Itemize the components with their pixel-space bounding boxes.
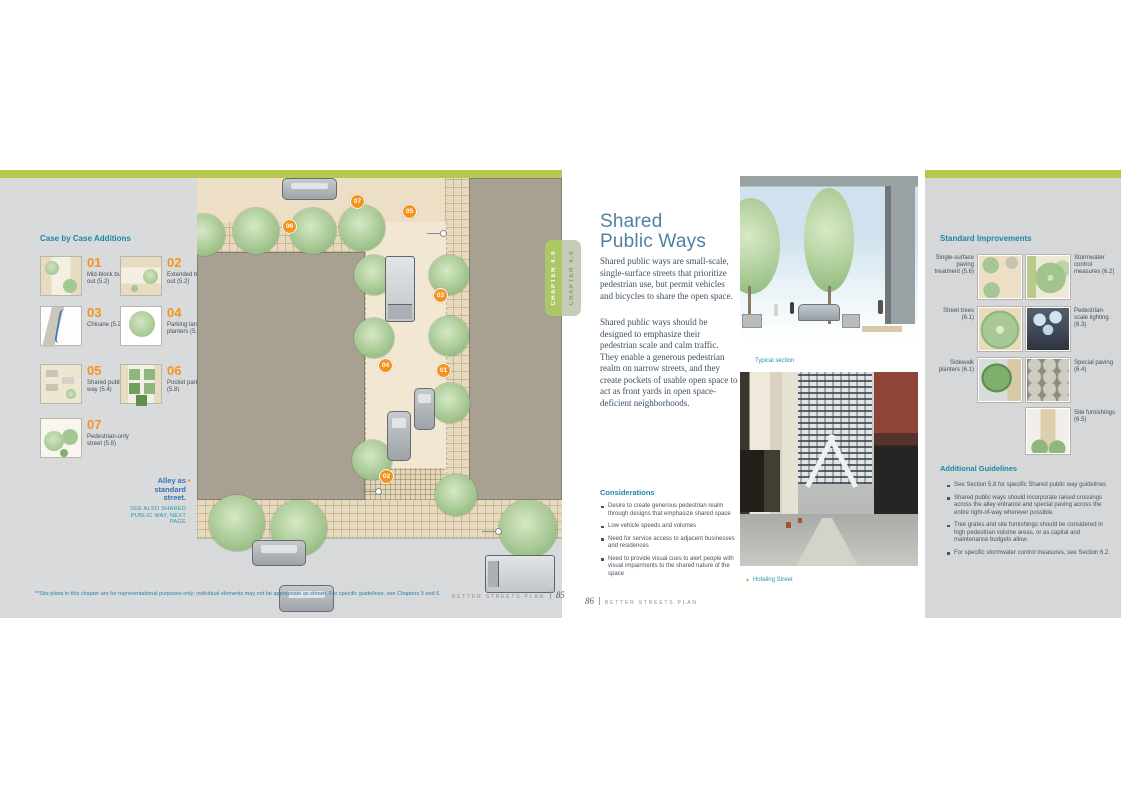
case-number: 04	[167, 306, 181, 319]
plan-callout: 01	[436, 363, 451, 378]
guideline-bullet: Shared public ways should incorporate ra…	[946, 495, 1114, 518]
tree-illustration	[804, 188, 854, 292]
improvement-thumbnail	[1026, 307, 1070, 351]
page-title-line1: Shared	[600, 212, 706, 232]
street-lamp	[440, 230, 447, 237]
plan-callout: 05	[402, 204, 417, 219]
photo-caption: ▲Hotaling Street	[745, 568, 793, 586]
building-illustration	[885, 186, 915, 324]
left-page-footer: BETTER STREETS PLAN85	[452, 590, 565, 600]
case-thumbnail	[120, 364, 162, 404]
tree	[354, 318, 394, 358]
case-thumbnail	[40, 364, 82, 404]
planter-pot	[798, 518, 802, 523]
page-title: Shared Public Ways	[600, 212, 706, 252]
guideline-bullet: See Section 5.8 for specific Shared publ…	[946, 482, 1114, 490]
right-page-footer: 86BETTER STREETS PLAN	[585, 591, 698, 609]
crosswalk-strip	[862, 326, 902, 332]
planter-pot	[786, 522, 791, 528]
chapter-tab-label: CHAPTER 4.0	[569, 250, 575, 306]
tree	[430, 383, 470, 423]
car	[279, 585, 334, 612]
left-page-accent-bar	[0, 170, 562, 178]
plan-callout: 07	[350, 194, 365, 209]
car	[387, 411, 411, 461]
triangle-icon: ▲	[745, 577, 750, 583]
footer-divider	[550, 591, 551, 599]
improvement-label: Single-surface paving treatment (5.6)	[932, 255, 974, 276]
footnote: **Site plans in this chapter are for rep…	[35, 591, 441, 597]
section-caption: Typical section	[755, 358, 794, 364]
car-windshield	[291, 183, 328, 189]
improvement-label: Special paving (6.4)	[1074, 360, 1118, 374]
case-number: 05	[87, 364, 101, 377]
footer-divider	[599, 597, 600, 605]
page-title-line2: Public Ways	[600, 232, 706, 252]
planter-box	[742, 314, 762, 328]
improvement-thumbnail	[1026, 358, 1070, 402]
plan-callout: 06	[282, 219, 297, 234]
truck	[485, 555, 555, 593]
case-number: 06	[167, 364, 181, 377]
considerations-list: Desire to create generous pedestrian rea…	[600, 503, 742, 583]
plan-callout: 03	[433, 288, 448, 303]
alley-see-also-note: SEE ALSO SHARED PUBLIC WAY, NEXT PAGE	[126, 506, 186, 526]
alley-standard-street-note: Alley as standard street.	[130, 477, 186, 503]
case-additions-heading: Case by Case Additions	[40, 234, 131, 243]
case-number: 02	[167, 256, 181, 269]
guideline-bullet: Tree grates and site furnishings should …	[946, 522, 1114, 545]
improvement-label: Street trees (6.1)	[932, 308, 974, 322]
improvement-label: Stormwater control measures (6.2)	[1074, 255, 1118, 276]
arrow-icon: ▸	[188, 477, 191, 484]
tree	[290, 208, 336, 254]
chapter-tab: CHAPTER 4.0 CHAPTER 4.0	[545, 240, 581, 316]
case-thumbnail	[120, 256, 162, 296]
page-number: 85	[556, 590, 565, 600]
typical-section-illustration	[740, 176, 918, 354]
tree-illustration	[740, 198, 780, 294]
truck-cab	[388, 304, 412, 319]
office-tower	[792, 372, 872, 484]
case-thumbnail	[40, 418, 82, 458]
delivery-truck	[385, 256, 415, 322]
guideline-bullet: For specific stormwater control measures…	[946, 550, 1114, 558]
improvement-label: Pedestrian-scale lighting (6.3)	[1074, 308, 1118, 329]
pedestrian-figure	[774, 304, 778, 316]
planter-box	[842, 314, 860, 328]
tree	[233, 208, 279, 254]
right-panel-accent-bar	[925, 170, 1121, 178]
case-label: Pedestrian-only street (5.8)	[87, 434, 139, 448]
brace-right	[827, 434, 858, 488]
photo-caption-text: Hotaling Street	[753, 577, 793, 583]
chapter-tab-back: CHAPTER 4.0	[562, 240, 581, 316]
footer-book-title: BETTER STREETS PLAN	[452, 594, 545, 600]
improvement-thumbnail	[1026, 408, 1070, 454]
site-plan-illustration: 07 05 06 03 04 01 02	[197, 178, 562, 618]
intro-paragraph: Shared public ways should be designed to…	[600, 317, 738, 409]
consideration-bullet: Need to provide visual cues to alert peo…	[600, 556, 742, 579]
improvement-thumbnail	[1026, 255, 1070, 299]
tree	[499, 500, 557, 558]
car	[252, 540, 306, 566]
truck-cab	[488, 561, 499, 586]
car-illustration	[798, 304, 840, 321]
building-block-right	[469, 178, 562, 500]
guidelines-list: See Section 5.8 for specific Shared publ…	[946, 482, 1114, 562]
improvement-thumbnail	[978, 307, 1022, 351]
tree	[339, 205, 385, 251]
plan-callout: 04	[378, 358, 393, 373]
improvement-thumbnail	[978, 255, 1022, 299]
improvement-thumbnail	[978, 358, 1022, 402]
pedestrian-figure	[878, 300, 883, 314]
car	[282, 178, 337, 200]
page-number: 86	[585, 596, 594, 606]
footer-book-title: BETTER STREETS PLAN	[605, 600, 698, 606]
improvement-label: Sidewalk planters (6.1)	[932, 360, 974, 374]
document-spread: Case by Case Additions 01 Mid-block bulb…	[0, 0, 1123, 794]
consideration-bullet: Low vehicle speeds and volumes	[600, 523, 742, 531]
case-item-03: 03 Chicane (5.2)	[40, 306, 132, 352]
case-item-05: 05 Shared public way (5.4)	[40, 364, 132, 410]
case-thumbnail	[40, 306, 82, 346]
consideration-bullet: Desire to create generous pedestrian rea…	[600, 503, 742, 518]
street-lamp	[375, 488, 382, 495]
case-thumbnail	[120, 306, 162, 346]
tree	[435, 474, 477, 516]
pedestrian-figure	[790, 302, 794, 314]
case-number: 03	[87, 306, 101, 319]
guidelines-heading: Additional Guidelines	[940, 464, 1017, 473]
chapter-tab-label: CHAPTER 4.0	[551, 250, 557, 306]
left-buildings	[740, 372, 798, 530]
chapter-tab-front: CHAPTER 4.0	[545, 240, 562, 316]
right-brick-building	[874, 372, 918, 532]
building-block-left	[197, 252, 365, 500]
car-windshield	[392, 418, 406, 429]
street-photo	[740, 372, 918, 566]
improvement-label: Site furnishings (6.5)	[1074, 410, 1118, 424]
car	[414, 388, 435, 430]
street-lamp	[495, 528, 502, 535]
intro-paragraph: Shared public ways are small-scale, sing…	[600, 256, 738, 302]
case-item-07: 07 Pedestrian-only street (5.8)	[40, 418, 170, 464]
car-windshield	[261, 545, 297, 552]
plan-callout: 02	[379, 469, 394, 484]
case-item-01: 01 Mid-block bulb-out (5.2)	[40, 256, 132, 302]
case-thumbnail	[40, 256, 82, 296]
tree	[429, 316, 469, 356]
case-number: 07	[87, 418, 101, 431]
case-number: 01	[87, 256, 101, 269]
consideration-bullet: Need for service access to adjacent busi…	[600, 536, 742, 551]
car-windshield	[418, 394, 430, 403]
improvements-heading: Standard Improvements	[940, 234, 1032, 243]
considerations-heading: Considerations	[600, 488, 655, 497]
